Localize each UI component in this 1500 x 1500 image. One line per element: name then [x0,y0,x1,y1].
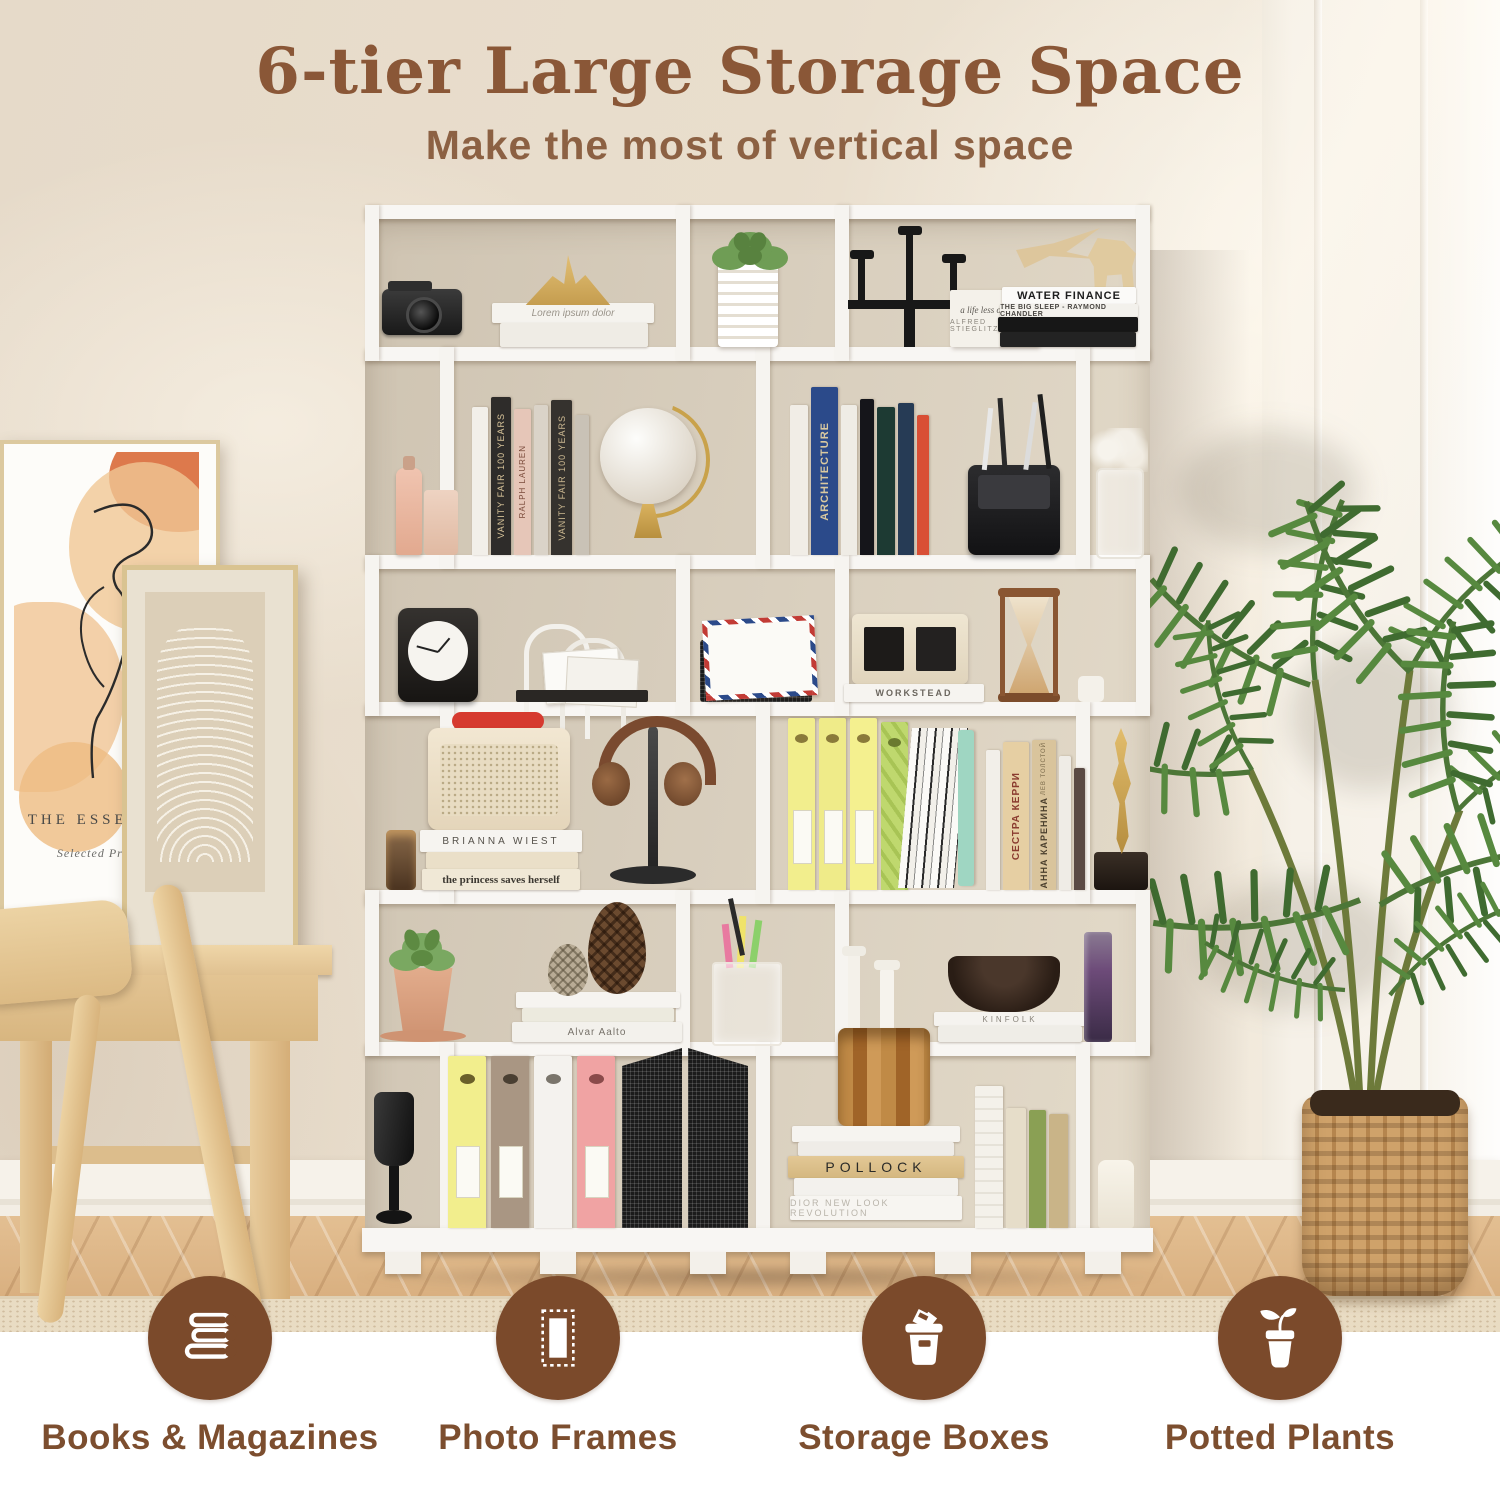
binder-hole [546,1074,561,1084]
binder-hole [503,1074,518,1084]
vintage-radio [428,728,570,830]
mesh-file-holder [622,1048,682,1228]
frame-window [864,627,904,671]
binder [491,1056,529,1228]
candlestick-top [874,960,900,970]
page-title: 6-tier Large Storage Space [0,34,1500,109]
trophy-base [1094,852,1148,890]
book-spine-text: WORKSTEAD [876,688,953,698]
succulent-pot [718,262,778,347]
product-lifestyle-image: THE ESSENCE O Selected Prints:19 [0,0,1500,1500]
book-spine: ЛЕВ ТОЛСТОЙ АННА КАРЕНИНА [1032,740,1056,890]
shelf-wall [365,555,379,716]
shelf-wall [756,702,770,904]
candle-cup [386,830,416,890]
feature-label: Photo Frames [358,1418,758,1458]
shelf-foot [935,1252,971,1274]
shelf-wall [756,1042,770,1232]
book-spine-text: THE BIG SLEEP - RAYMOND CHANDLER [1000,304,1138,317]
clock-hand [416,645,438,653]
book-spine-text: WATER FINANCE [1017,290,1121,302]
book-horizontal: BRIANNA WIEST [420,830,582,852]
binder-label [585,1146,609,1198]
book-spine-text: KINFOLK [982,1015,1037,1024]
desk-leg [250,1041,290,1299]
book-spine-text: VANITY FAIR 100 YEARS [496,413,506,539]
binder-label [499,1146,523,1198]
book-spine: VANITY FAIR 100 YEARS [551,400,572,555]
shelf-wall [835,205,849,361]
hourglass [998,588,1060,702]
book-group: VANITY FAIR 100 YEARS RALPH LAUREN VANIT… [472,395,589,555]
shelf-foot [1085,1252,1121,1274]
book-horizontal [998,317,1138,332]
book-spine [472,407,488,555]
succulent-plant [372,918,472,976]
frame-window [916,627,956,671]
candelabra-cap [942,254,966,263]
shelf-wall [756,347,770,569]
book-horizontal [426,852,578,869]
photo-frame-icon [523,1303,593,1373]
page-subtitle: Make the most of vertical space [0,122,1500,169]
book-horizontal [798,1142,954,1156]
binder-hole [589,1074,604,1084]
book-spine-text: VANITY FAIR 100 YEARS [557,415,567,541]
succulent-plant [700,218,800,274]
arch-print-frame [122,565,298,960]
shelf-foot [790,1252,826,1274]
book-horizontal [1000,332,1136,347]
glass-vase [1096,468,1144,559]
shelf-wall [676,205,690,361]
book-spine-text: the princess saves herself [442,874,560,886]
desk-clock [398,608,478,702]
folder-hole [826,734,839,743]
arch-print-arcs [157,622,253,862]
goblet-cup [374,1092,414,1166]
folder-hole [795,734,808,743]
binder [534,1056,572,1228]
perfume-cap [403,456,415,470]
book-spine-text: POLLOCK [825,1159,926,1175]
book-spine [860,399,874,555]
candlestick-top [842,946,866,956]
feature-label: Storage Boxes [724,1418,1124,1458]
wooden-vessel [838,1028,930,1126]
book-spine [1006,1108,1026,1228]
book-horizontal [938,1026,1082,1042]
book-spine [790,405,808,555]
wicker-basket [1302,1096,1468,1296]
book-spine-text: DIOR NEW LOOK REVOLUTION [790,1198,962,1218]
binder [577,1056,615,1228]
shelf-foot [690,1252,726,1274]
book-spine-text: Lorem ipsum dolor [532,308,615,319]
book-spine-text: Alvar Aalto [568,1027,627,1038]
camera-top-plate [388,281,432,291]
folder [788,718,815,890]
feature-circle-plants [1218,1276,1342,1400]
hourglass-bottom [998,693,1060,702]
book-horizontal: THE BIG SLEEP - RAYMOND CHANDLER [1000,304,1138,317]
book-spine [575,415,589,555]
book-spine: СЕСТРА КЕРРИ [1003,742,1029,890]
folder-group [788,716,908,890]
book-spine [986,750,1000,890]
book-horizontal: Alvar Aalto [512,1022,682,1042]
shelf-foot [540,1252,576,1274]
shelf-floor-shadow [350,1262,1170,1292]
candelabra-base-stem [904,309,915,347]
camera [382,289,462,335]
perfume-box [424,490,458,555]
folder [819,718,846,890]
clock-face [408,621,468,681]
book-horizontal [794,1178,958,1196]
book-horizontal: POLLOCK [788,1156,964,1178]
folder-label [824,810,843,864]
book-horizontal: KINFOLK [934,1012,1086,1026]
book-spine-text: RALPH LAUREN [518,445,527,518]
candlestick [848,952,860,1032]
wicker-weave [1302,1096,1468,1296]
headphone-cup [664,762,702,806]
shelf-wall [1136,890,1150,1056]
feature-label: Books & Magazines [10,1418,410,1458]
clock-hand [437,638,450,653]
folder-label [793,810,812,864]
shelf-wall [1136,205,1150,361]
book-spine [841,405,857,555]
candelabra-stem [858,258,865,300]
book-spine [1029,1110,1046,1228]
white-pillar-candle [1098,1160,1134,1228]
room-photo: THE ESSENCE O Selected Prints:19 [0,0,1500,1332]
folder-label [855,810,874,864]
binder-group [448,1054,615,1228]
binder [448,1056,486,1228]
book-spine [917,415,929,555]
small-cylinder [1078,676,1104,702]
book-group [975,1084,1068,1228]
candlestick [880,968,894,1034]
book-spine [877,407,895,555]
book-spine [975,1086,1003,1228]
double-photo-frame [852,614,968,684]
book-spine: VANITY FAIR 100 YEARS [491,397,511,555]
books-icon [175,1303,245,1373]
book-spine-text: СЕСТРА КЕРРИ [1011,772,1022,860]
book-horizontal: DIOR NEW LOOK REVOLUTION [790,1196,962,1220]
binder-hole [460,1074,475,1084]
file-rack [958,730,974,886]
book-horizontal [792,1126,960,1142]
shelf-bar [365,205,1150,219]
book-spine: ARCHITECTURE [811,387,838,555]
hourglass-glass [1007,597,1051,693]
feature-label: Potted Plants [1080,1418,1480,1458]
folder-hole [888,738,901,747]
mesh-file-holder [688,1048,748,1228]
book-spine [1049,1114,1068,1228]
book-spine: RALPH LAUREN [514,409,531,555]
candelabra-stem [906,234,913,300]
clear-pen-cup [712,962,782,1046]
book-horizontal [522,1008,674,1022]
black-goblet [372,1092,416,1228]
shelf-wall [1136,555,1150,716]
book-horizontal: Lorem ipsum dolor [492,303,654,323]
shelf-wall [1076,1042,1090,1232]
shelf-foot [385,1252,421,1274]
book-spine-text: BRIANNA WIEST [442,836,559,847]
book-spine-text: АННА КАРЕНИНА [1039,797,1049,888]
potted-plant-icon [1245,1303,1315,1373]
airmail-envelope [702,615,818,701]
headphone-cup [592,762,630,806]
letter-holder-base [516,690,648,702]
book-spine [534,405,548,555]
storage-box-icon [889,1303,959,1373]
pen-organizer-slot [978,475,1050,509]
book-spine [1059,756,1071,890]
feature-circle-books [148,1276,272,1400]
binder-label [456,1146,480,1198]
folder [850,718,877,890]
book-horizontal: the princess saves herself [422,869,580,890]
feature-circle-boxes [862,1276,986,1400]
shelf-wall [1076,347,1090,569]
shelf-base [362,1228,1153,1252]
goblet-stem [389,1166,399,1210]
goblet-foot [376,1210,412,1224]
perfume-bottle [396,468,422,555]
book-author: ЛЕВ ТОЛСТОЙ [1041,742,1047,795]
headphone-stand-base [610,866,696,884]
book-spine [898,403,914,555]
candelabra-cap [850,250,874,259]
book-horizontal [516,992,680,1008]
book-horizontal: WORKSTEAD [844,684,984,702]
book-group: СЕСТРА КЕРРИ ЛЕВ ТОЛСТОЙ АННА КАРЕНИНА [986,738,1085,890]
candelabra-cap [898,226,922,235]
arch-print-canvas [145,592,265,892]
book-spine [1074,768,1085,890]
feature-circle-frames [496,1276,620,1400]
shelf-wall [365,205,379,361]
basket-soil [1310,1090,1460,1116]
folder-hole [857,734,870,743]
purple-candle [1084,932,1112,1042]
chair-backrest [0,898,134,1007]
book-horizontal [500,323,648,347]
dried-flowers [1090,428,1148,472]
radio-speaker-grill [440,744,558,816]
pot-saucer [380,1030,466,1042]
letter-holder [516,624,648,702]
pen-organizer [968,465,1060,555]
shelf-wall [676,555,690,716]
book-spine-text: ARCHITECTURE [819,422,831,521]
camera-lens [406,297,442,333]
hourglass-rod [1000,594,1005,696]
silver-pinecone [548,944,588,996]
hourglass-top [998,588,1060,597]
hourglass-rod [1053,594,1058,696]
book-horizontal: WATER FINANCE [1002,287,1136,304]
book-group: ARCHITECTURE [790,385,929,555]
